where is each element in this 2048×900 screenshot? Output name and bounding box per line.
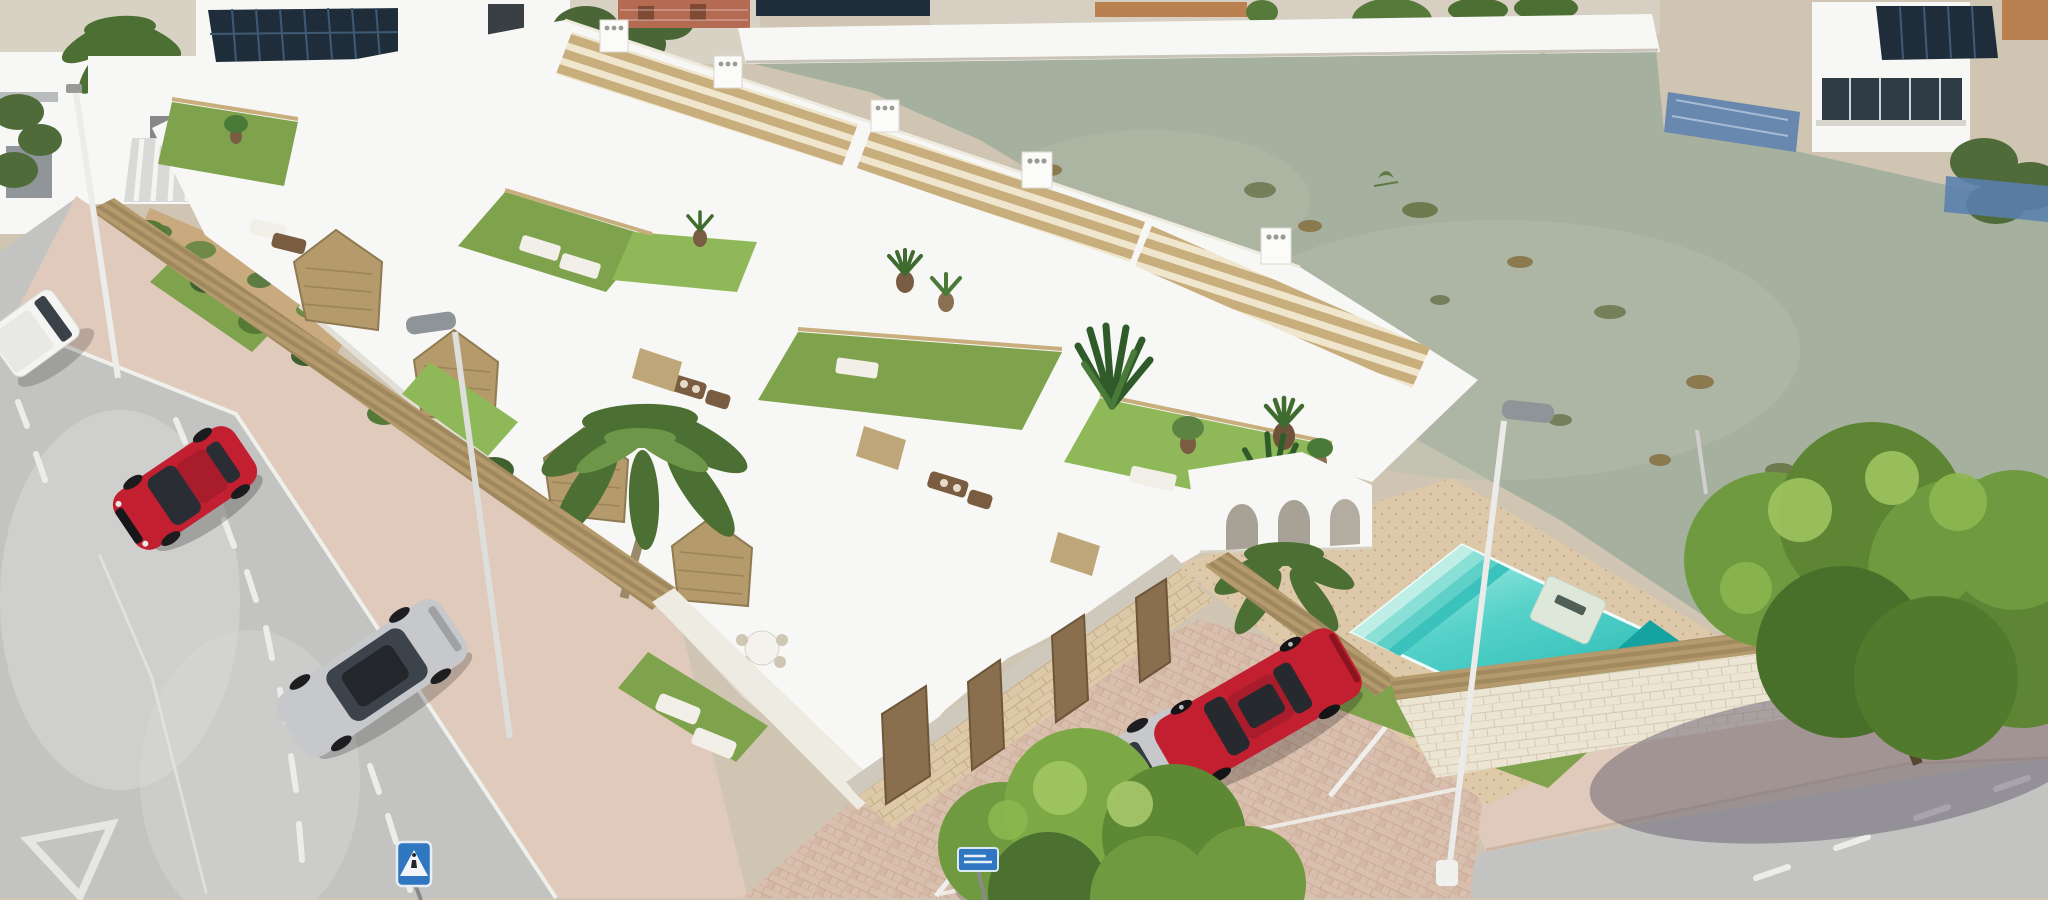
arch-opening (1278, 500, 1310, 548)
aerial-render-photo (0, 0, 2048, 900)
far-solar-band (756, 0, 936, 16)
far-terracotta-roof (1095, 2, 1247, 17)
arch-opening (1330, 499, 1360, 546)
unfinished-brick-house (618, 0, 750, 28)
corner-orange-building (2002, 0, 2048, 40)
streetlight-head (66, 84, 82, 93)
arch-opening (1226, 504, 1258, 550)
scene-canvas (0, 0, 2048, 900)
right-villa-solar (1876, 6, 1998, 60)
streetlight-base (1436, 860, 1458, 886)
